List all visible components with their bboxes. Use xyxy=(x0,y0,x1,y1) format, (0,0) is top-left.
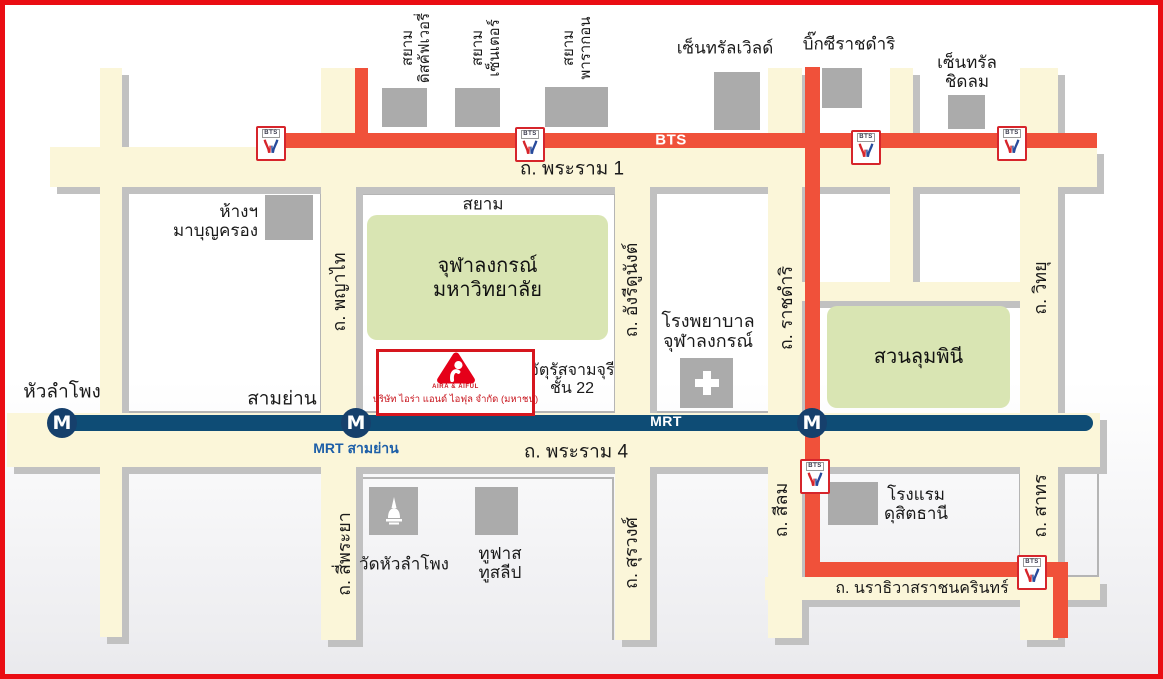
label-chula-hospital: โรงพยาบาล จุฬาลงกรณ์ xyxy=(661,311,754,351)
label-bts-line: BTS xyxy=(655,133,687,150)
aira-aiful-logo-caption: AIRA & AIFUL xyxy=(432,384,479,390)
label-toofast-tosleep: ทูฟาส ทูสลีป xyxy=(478,544,521,582)
label-mrt-sam-yan: MRT สามย่าน xyxy=(313,441,398,457)
label-silom: ถ. สีลม xyxy=(771,483,791,538)
label-central-world: เซ็นทรัลเวิลด์ xyxy=(677,38,774,57)
label-chamchuri-square: จัตุรัสจามจุรี ชั้น 22 xyxy=(530,362,615,398)
bangkok-location-map: จุฬาลงกรณ์ มหาวิทยาลัยสวนลุมพินี MMMBTSB… xyxy=(0,0,1163,679)
label-mbk: ห้างฯ มาบุญครอง xyxy=(173,202,258,240)
label-narathiwat: ถ. นราธิวาสราชนครินทร์ xyxy=(835,580,1008,598)
label-rama-4: ถ. พระราม 4 xyxy=(524,441,628,462)
label-witthayu: ถ. วิทยุ xyxy=(1030,261,1050,314)
label-sathorn: ถ. สาทร xyxy=(1030,474,1050,538)
label-henri-dunant: ถ. อังรีดูนังต์ xyxy=(621,243,641,338)
label-bigc-ratchadamri: บิ๊กซีราชดำริ xyxy=(803,34,896,53)
aira-aiful-company-name: บริษัท ไอร่า แอนด์ ไอฟุล จำกัด (มหาชน) xyxy=(373,392,538,407)
label-surawong: ถ. สุรวงศ์ xyxy=(621,517,641,589)
aira-aiful-office-box: AIRA & AIFUL บริษัท ไอร่า แอนด์ ไอฟุล จำ… xyxy=(376,349,535,416)
label-sam-yan: สามย่าน xyxy=(247,388,317,409)
label-mrt-line: MRT xyxy=(650,414,682,430)
label-ratchadamri: ถ. ราชดำริ xyxy=(776,266,796,350)
label-phayathai: ถ. พญาไท xyxy=(329,252,349,331)
aira-aiful-logo-icon xyxy=(436,352,476,385)
label-siam-paragon: สยาม พารากอน xyxy=(561,16,595,79)
label-wat-hua-lamphong: วัดหัวลำโพง xyxy=(359,554,449,573)
label-si-phraya: ถ. สี่พระยา xyxy=(334,512,354,596)
label-dusit-thani: โรงแรม ดุสิตธานี xyxy=(884,485,948,523)
label-hua-lamphong: หัวลำโพง xyxy=(23,381,101,402)
label-siam-area: สยาม xyxy=(462,194,503,213)
label-siam-center: สยาม เซ็นเตอร์ xyxy=(470,19,504,77)
label-rama-1: ถ. พระราม 1 xyxy=(520,158,624,179)
label-siam-discovery: สยาม ดิสคัฟเวอรี่ xyxy=(400,13,434,83)
label-central-chidlom: เซ็นทรัล ชิดลม xyxy=(937,53,997,91)
labels-layer: สยาม ดิสคัฟเวอรี่สยาม เซ็นเตอร์สยาม พารา… xyxy=(0,0,1163,679)
